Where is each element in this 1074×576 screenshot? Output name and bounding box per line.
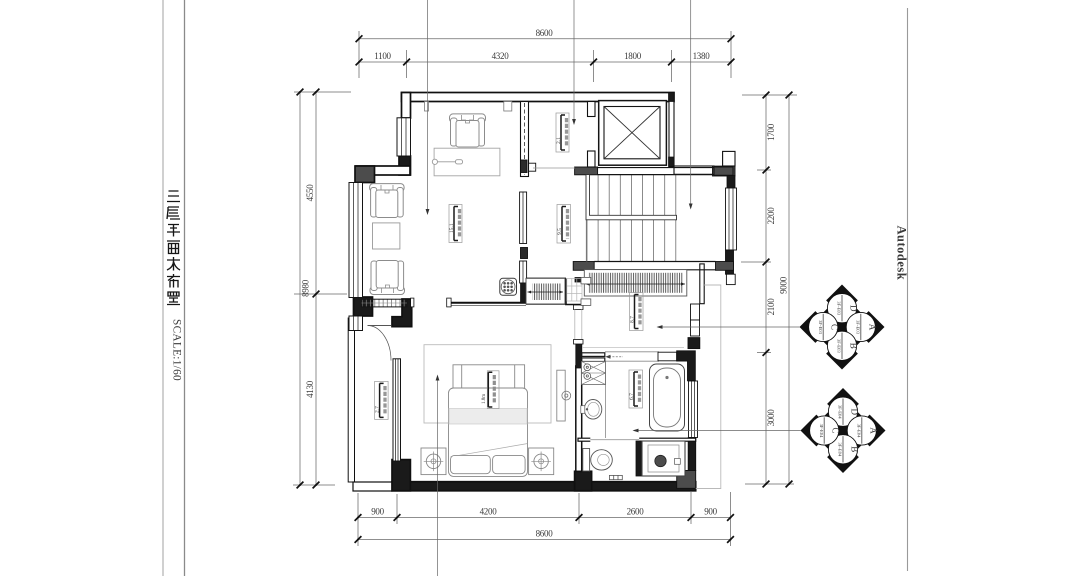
svg-text:4130: 4130 xyxy=(305,380,315,398)
svg-text:4200: 4200 xyxy=(480,507,498,517)
svg-text:9000: 9000 xyxy=(779,276,789,294)
svg-text:Autodesk: Autodesk xyxy=(895,226,909,281)
svg-text:2.7: 2.7 xyxy=(375,406,381,413)
svg-text:B: B xyxy=(849,446,859,452)
svg-text:1380: 1380 xyxy=(693,51,711,61)
svg-text:3F-E03: 3F-E03 xyxy=(818,320,823,334)
svg-text:4320: 4320 xyxy=(492,51,510,61)
svg-text:900: 900 xyxy=(704,507,717,517)
svg-text:3F-E03: 3F-E03 xyxy=(856,320,861,334)
svg-text:15.1: 15.1 xyxy=(449,223,455,233)
svg-text:3F-E03: 3F-E03 xyxy=(837,301,842,315)
svg-text:3000: 3000 xyxy=(766,409,776,427)
svg-text:6.7: 6.7 xyxy=(629,393,635,400)
svg-text:3F-E04: 3F-E04 xyxy=(838,442,843,456)
svg-text:8600: 8600 xyxy=(536,28,554,38)
svg-text:2.1: 2.1 xyxy=(556,137,562,144)
svg-text:3F-E04: 3F-E04 xyxy=(838,405,843,419)
svg-text:2100: 2100 xyxy=(766,298,776,316)
svg-text:8.7: 8.7 xyxy=(630,316,636,323)
svg-text:3F-E04: 3F-E04 xyxy=(819,424,824,438)
svg-text:8600: 8600 xyxy=(536,529,554,539)
svg-text:B: B xyxy=(848,343,858,349)
svg-text:A: A xyxy=(867,324,877,331)
svg-text:8980: 8980 xyxy=(301,279,311,297)
svg-text:3F-E03: 3F-E03 xyxy=(837,339,842,353)
svg-text:3F-E04: 3F-E04 xyxy=(857,424,862,438)
svg-text:D: D xyxy=(848,305,858,312)
svg-text:C: C xyxy=(831,427,841,433)
svg-text:A: A xyxy=(868,427,878,434)
svg-text:C: C xyxy=(830,324,840,330)
svg-text:4550: 4550 xyxy=(305,184,315,202)
svg-text:D: D xyxy=(849,408,859,415)
svg-text:9.5: 9.5 xyxy=(557,228,563,235)
svg-text:1700: 1700 xyxy=(766,123,776,141)
svg-text:2600: 2600 xyxy=(627,507,645,517)
svg-text:1.8m: 1.8m xyxy=(482,394,487,404)
svg-text:1800: 1800 xyxy=(624,51,642,61)
svg-text:1100: 1100 xyxy=(374,51,391,61)
svg-text:2200: 2200 xyxy=(766,207,776,225)
svg-text:900: 900 xyxy=(371,507,384,517)
svg-text:SCALE:1/60: SCALE:1/60 xyxy=(171,319,183,381)
